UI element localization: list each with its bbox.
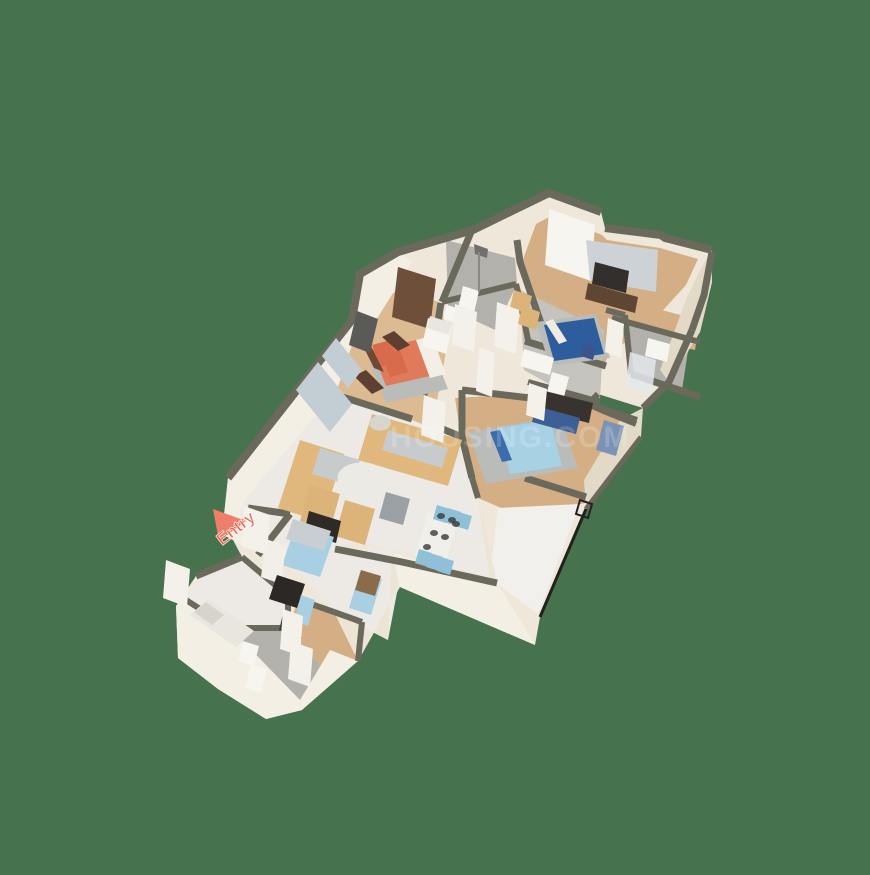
svg-text:HOUSING.COM: HOUSING.COM <box>390 421 630 454</box>
